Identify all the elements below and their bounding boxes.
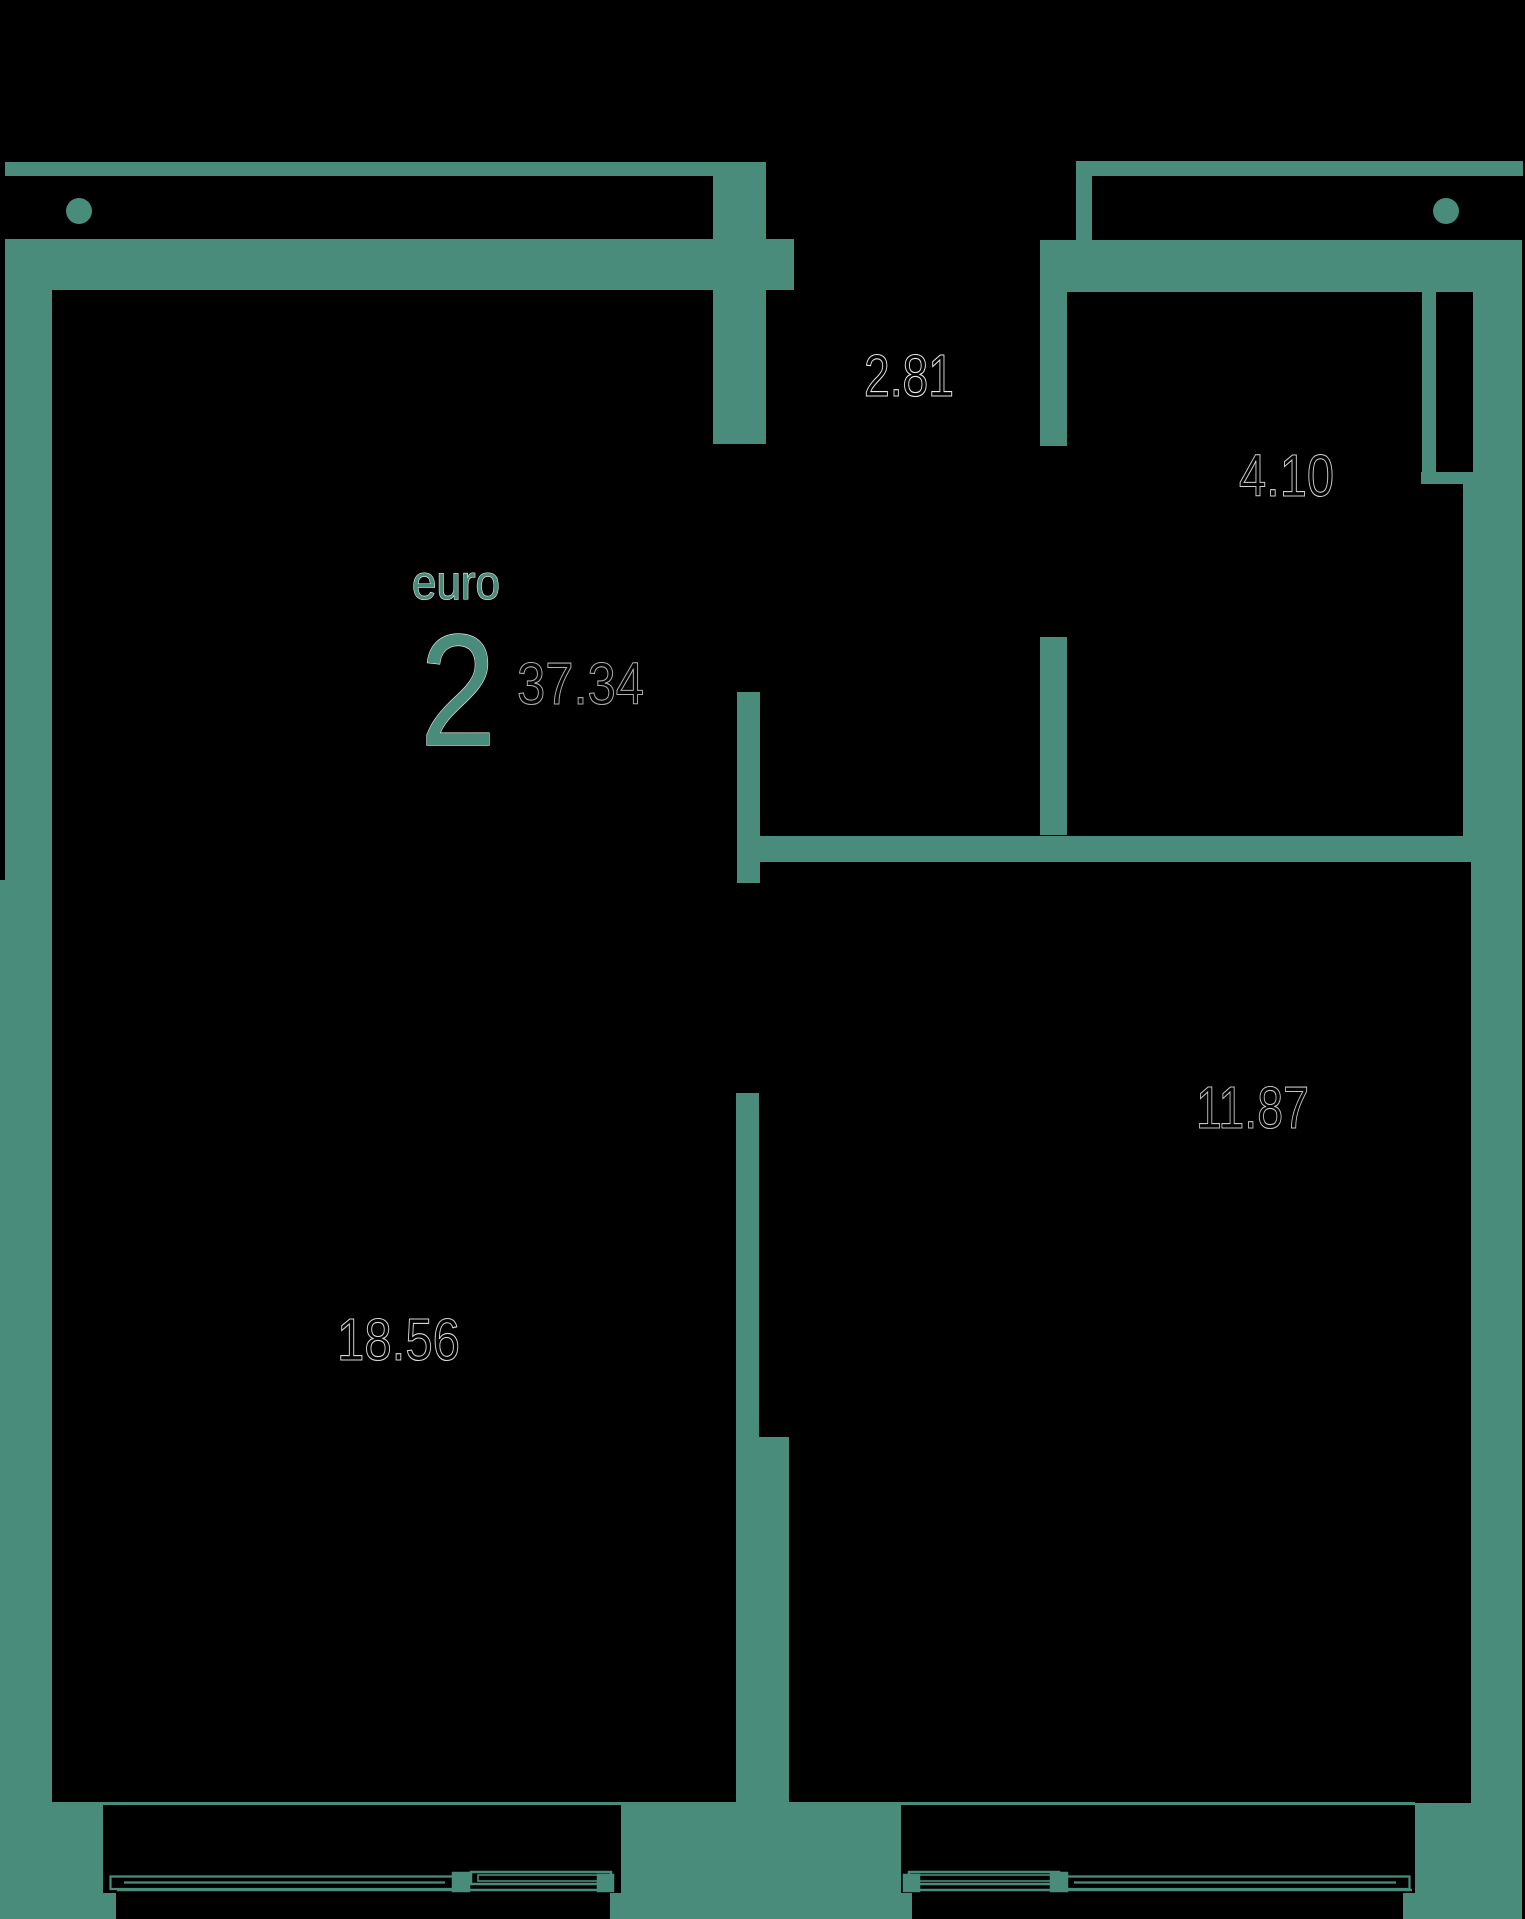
svg-text:11.87: 11.87 bbox=[1196, 1075, 1309, 1141]
svg-text:37.34: 37.34 bbox=[517, 651, 644, 717]
svg-text:2.81: 2.81 bbox=[864, 343, 954, 409]
svg-text:4.10: 4.10 bbox=[1239, 443, 1334, 509]
svg-text:2: 2 bbox=[420, 601, 496, 779]
svg-text:18.56: 18.56 bbox=[337, 1307, 460, 1373]
